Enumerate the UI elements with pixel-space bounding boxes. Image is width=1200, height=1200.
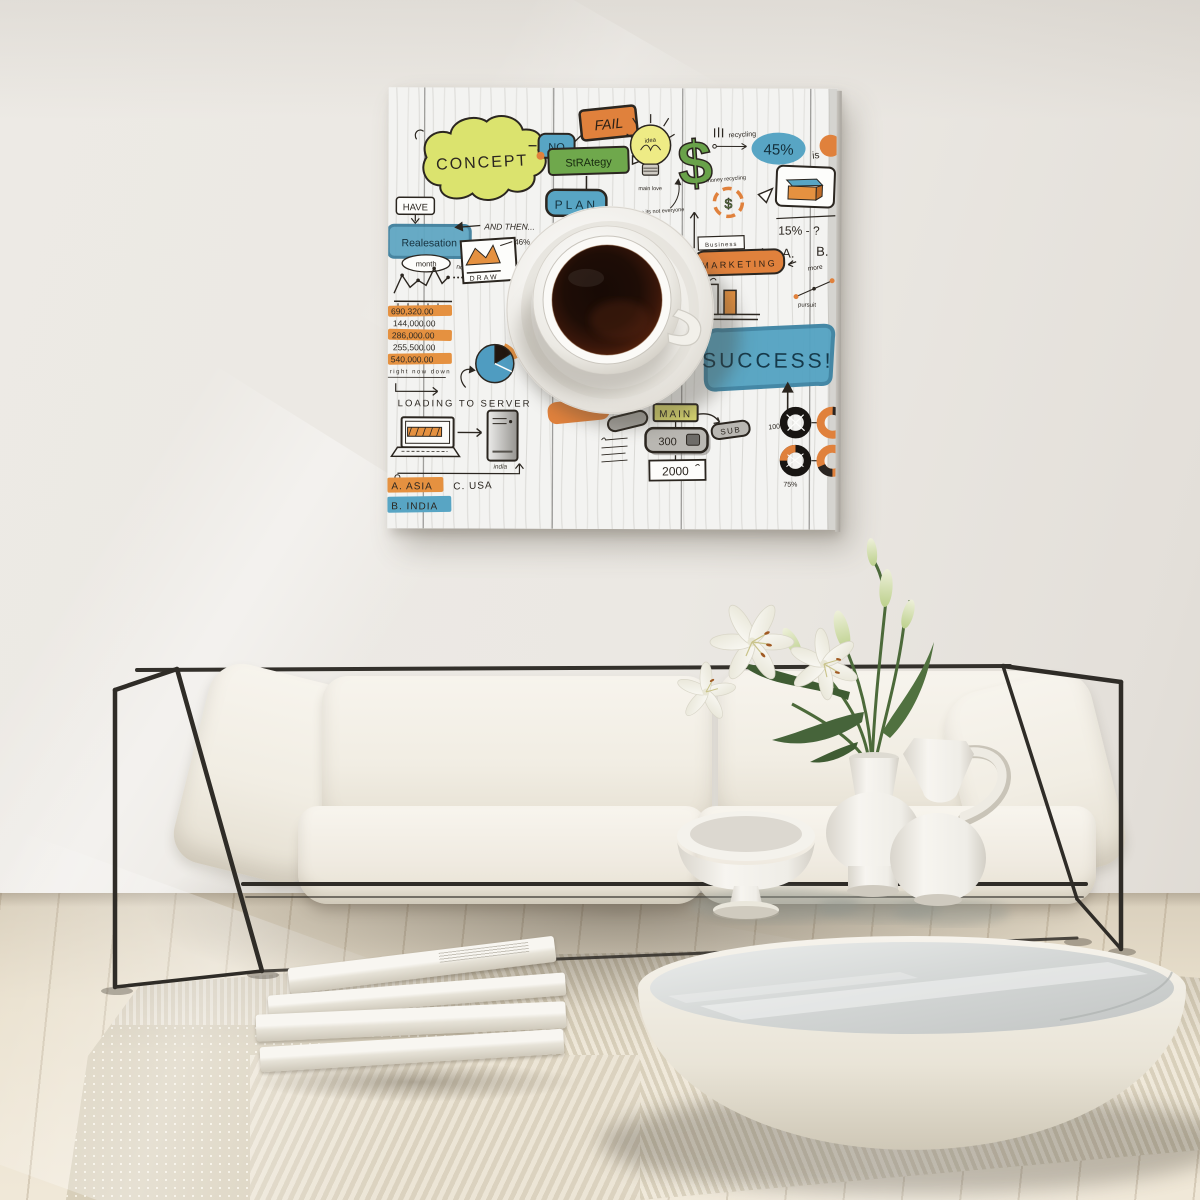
living-room-scene: CONCEPT HAVE Realesation month now AND T… (0, 0, 1200, 1200)
flower-bouquet (665, 538, 934, 768)
coffee-table-group (0, 0, 1200, 1200)
